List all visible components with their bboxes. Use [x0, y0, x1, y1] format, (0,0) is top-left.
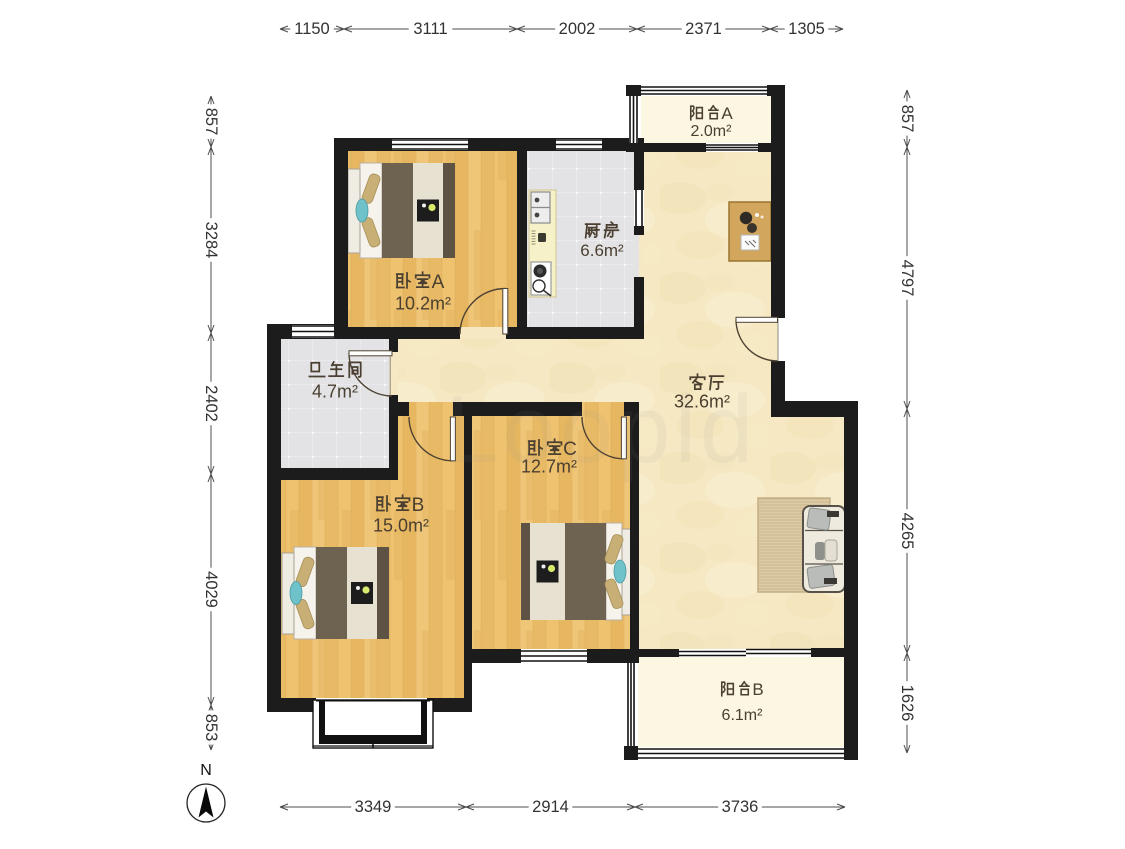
- svg-text:2002: 2002: [559, 20, 596, 38]
- svg-text:32.6m²: 32.6m²: [674, 391, 730, 411]
- svg-text:A: A: [721, 104, 733, 123]
- svg-text:857: 857: [898, 105, 916, 133]
- svg-text:853: 853: [202, 714, 220, 742]
- svg-text:3736: 3736: [722, 798, 759, 816]
- svg-text:6.6m²: 6.6m²: [580, 241, 624, 260]
- svg-text:3111: 3111: [413, 20, 447, 38]
- svg-text:1626: 1626: [898, 685, 916, 722]
- svg-text:4265: 4265: [898, 513, 916, 550]
- svg-text:B: B: [752, 680, 763, 699]
- svg-text:4.7m²: 4.7m²: [312, 381, 358, 401]
- svg-text:1150: 1150: [294, 20, 329, 38]
- svg-text:2371: 2371: [685, 20, 722, 38]
- svg-text:A: A: [432, 272, 445, 293]
- svg-text:2.0m²: 2.0m²: [691, 123, 733, 140]
- svg-text:2402: 2402: [202, 385, 220, 422]
- svg-text:15.0m²: 15.0m²: [373, 515, 429, 535]
- svg-text:6.1m²: 6.1m²: [722, 707, 764, 724]
- svg-text:857: 857: [202, 108, 220, 136]
- svg-text:3349: 3349: [355, 798, 392, 816]
- svg-text:4029: 4029: [202, 571, 220, 608]
- svg-text:12.7m²: 12.7m²: [521, 456, 577, 476]
- svg-text:10.2m²: 10.2m²: [395, 293, 451, 313]
- svg-text:3284: 3284: [202, 222, 220, 259]
- svg-text:4797: 4797: [898, 260, 916, 297]
- svg-text:2914: 2914: [532, 798, 569, 816]
- svg-text:B: B: [412, 495, 425, 516]
- svg-text:N: N: [200, 762, 212, 779]
- svg-text:1305: 1305: [788, 20, 825, 38]
